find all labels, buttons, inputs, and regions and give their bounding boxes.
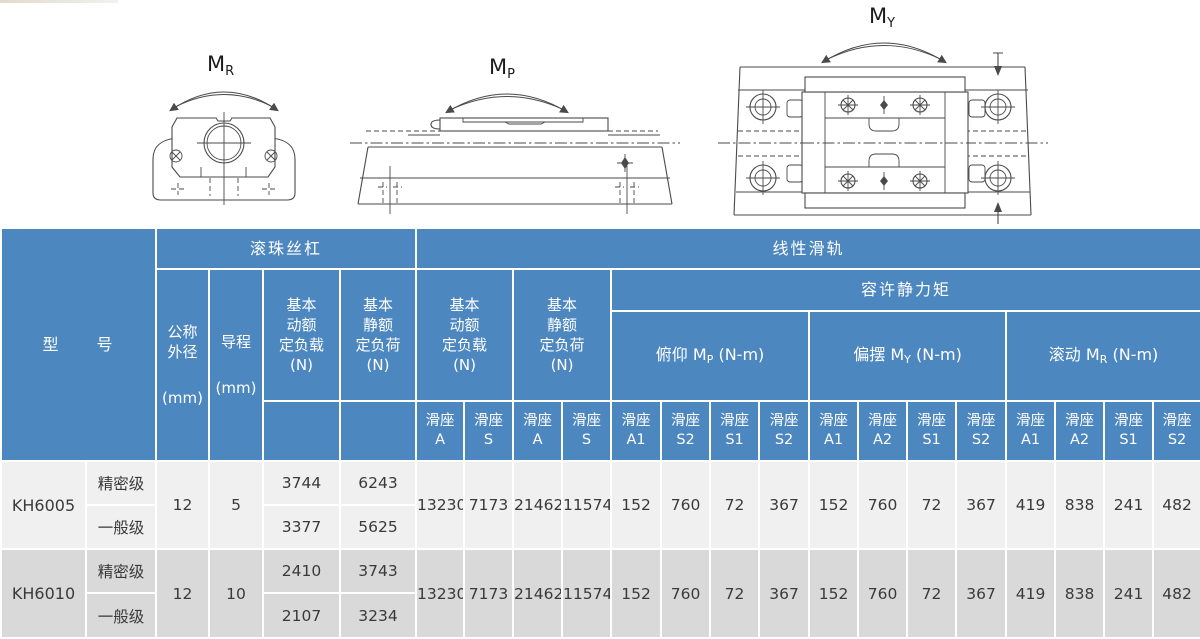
- col-nominal-od: 公称 外径 (mm): [156, 269, 209, 461]
- value-cell: 21462: [513, 549, 562, 638]
- slider-col: 滑座S2: [1153, 401, 1200, 461]
- value-cell: 152: [611, 461, 661, 549]
- value-cell: 152: [809, 461, 858, 549]
- carriage-side: [431, 118, 608, 131]
- col-lg-static-load: 基本 静额 定负荷 (N): [513, 269, 611, 401]
- slider-col: 滑座S1: [710, 401, 759, 461]
- mounting-hole: [746, 161, 780, 195]
- static-cell: 3234: [340, 593, 416, 638]
- value-cell: 367: [956, 461, 1006, 549]
- slider-col: 滑座A2: [858, 401, 907, 461]
- moment-diagrams: MR MP MY: [0, 0, 1200, 227]
- value-cell: 152: [611, 549, 661, 638]
- value-cell: 419: [1006, 549, 1055, 638]
- dynamic-cell: 2107: [263, 593, 340, 638]
- rail-side: [350, 131, 680, 214]
- mp-diagram: [350, 50, 680, 215]
- slider-col: 滑座A1: [1006, 401, 1055, 461]
- slider-col: 滑座S2: [759, 401, 809, 461]
- value-cell: 21462: [513, 461, 562, 549]
- value-cell: 72: [710, 549, 759, 638]
- slider-col: 滑座S2: [956, 401, 1006, 461]
- grade-cell: 精密级: [86, 461, 156, 505]
- value-cell: 760: [858, 549, 907, 638]
- value-cell: 838: [1055, 549, 1104, 638]
- value-cell: 11574: [562, 461, 611, 549]
- mounting-hole: [981, 90, 1015, 124]
- mounting-hole: [746, 90, 780, 124]
- value-cell: 419: [1006, 461, 1055, 549]
- value-cell: 760: [661, 461, 710, 549]
- mounting-hole: [981, 161, 1015, 195]
- static-cell: 5625: [340, 505, 416, 549]
- dynamic-cell: 3377: [263, 505, 340, 549]
- value-cell: 367: [759, 461, 809, 549]
- value-cell: 241: [1104, 549, 1153, 638]
- value-cell: 760: [858, 461, 907, 549]
- value-cell: 72: [907, 549, 956, 638]
- value-cell: 7173: [464, 549, 513, 638]
- value-cell: 241: [1104, 461, 1153, 549]
- my-diagram: [718, 0, 1048, 227]
- col-moment-pitch: 俯仰 MP (N-m): [611, 311, 809, 401]
- mr-diagram: [140, 45, 325, 225]
- value-cell: 838: [1055, 461, 1104, 549]
- slider-col: 滑座S1: [907, 401, 956, 461]
- model-cell: KH6005: [1, 461, 86, 549]
- group-ball-screw: 滚珠丝杠: [156, 228, 416, 269]
- slider-col: 滑座S: [464, 401, 513, 461]
- slider-col: 滑座A1: [611, 401, 661, 461]
- slider-col: 滑座S2: [661, 401, 710, 461]
- slider-col: 滑座A1: [809, 401, 858, 461]
- lead-cell: 5: [209, 461, 263, 549]
- empty-cell: [340, 401, 416, 461]
- mp-moment-arc: [447, 94, 567, 112]
- carriage-block: [172, 118, 275, 177]
- spec-sheet-page: { "colors":{ "header_blue":"#4d87c0", "r…: [0, 0, 1200, 637]
- value-cell: 482: [1153, 461, 1200, 549]
- static-cell: 3743: [340, 549, 416, 593]
- height-dimension-arrows: [993, 53, 1003, 224]
- slider-col: 滑座A2: [1055, 401, 1104, 461]
- dynamic-cell: 2410: [263, 549, 340, 593]
- value-cell: 760: [661, 549, 710, 638]
- value-cell: 13230: [416, 461, 464, 549]
- group-linear-guide: 线性滑轨: [416, 228, 1200, 269]
- col-bs-dynamic-load: 基本 动额 定负载 (N): [263, 269, 340, 401]
- lead-cell: 10: [209, 549, 263, 638]
- value-cell: 482: [1153, 549, 1200, 638]
- mr-moment-arc: [171, 92, 277, 110]
- value-cell: 152: [809, 549, 858, 638]
- value-cell: 7173: [464, 461, 513, 549]
- value-cell: 367: [759, 549, 809, 638]
- value-cell: 72: [907, 461, 956, 549]
- static-cell: 6243: [340, 461, 416, 505]
- value-cell: 11574: [562, 549, 611, 638]
- grade-cell: 一般级: [86, 593, 156, 638]
- value-cell: 13230: [416, 549, 464, 638]
- slider-col: 滑座A: [416, 401, 464, 461]
- col-lead: 导程 (mm): [209, 269, 263, 461]
- model-cell: KH6010: [1, 549, 86, 638]
- grade-cell: 一般级: [86, 505, 156, 549]
- value-cell: 72: [710, 461, 759, 549]
- slider-col: 滑座S1: [1104, 401, 1153, 461]
- col-lg-dynamic-load: 基本 动额 定负载 (N): [416, 269, 513, 401]
- group-static-moment: 容许静力矩: [611, 269, 1200, 311]
- carriage-top-view: [802, 77, 968, 208]
- dynamic-cell: 3744: [263, 461, 340, 505]
- od-cell: 12: [156, 461, 209, 549]
- slider-col: 滑座S: [562, 401, 611, 461]
- value-cell: 367: [956, 549, 1006, 638]
- col-moment-roll: 滚动 MR (N-m): [1006, 311, 1200, 401]
- empty-cell: [263, 401, 340, 461]
- grade-cell: 精密级: [86, 549, 156, 593]
- col-bs-static-load: 基本 静额 定负荷 (N): [340, 269, 416, 401]
- od-cell: 12: [156, 549, 209, 638]
- spec-table: 型 号 滚珠丝杠 线性滑轨 公称 外径 (mm) 导程 (mm) 基本 动额 定…: [0, 227, 1200, 639]
- col-moment-yaw: 偏摆 MY (N-m): [809, 311, 1006, 401]
- slider-col: 滑座A: [513, 401, 562, 461]
- my-moment-arc: [823, 43, 945, 62]
- header-model: 型 号: [1, 228, 156, 461]
